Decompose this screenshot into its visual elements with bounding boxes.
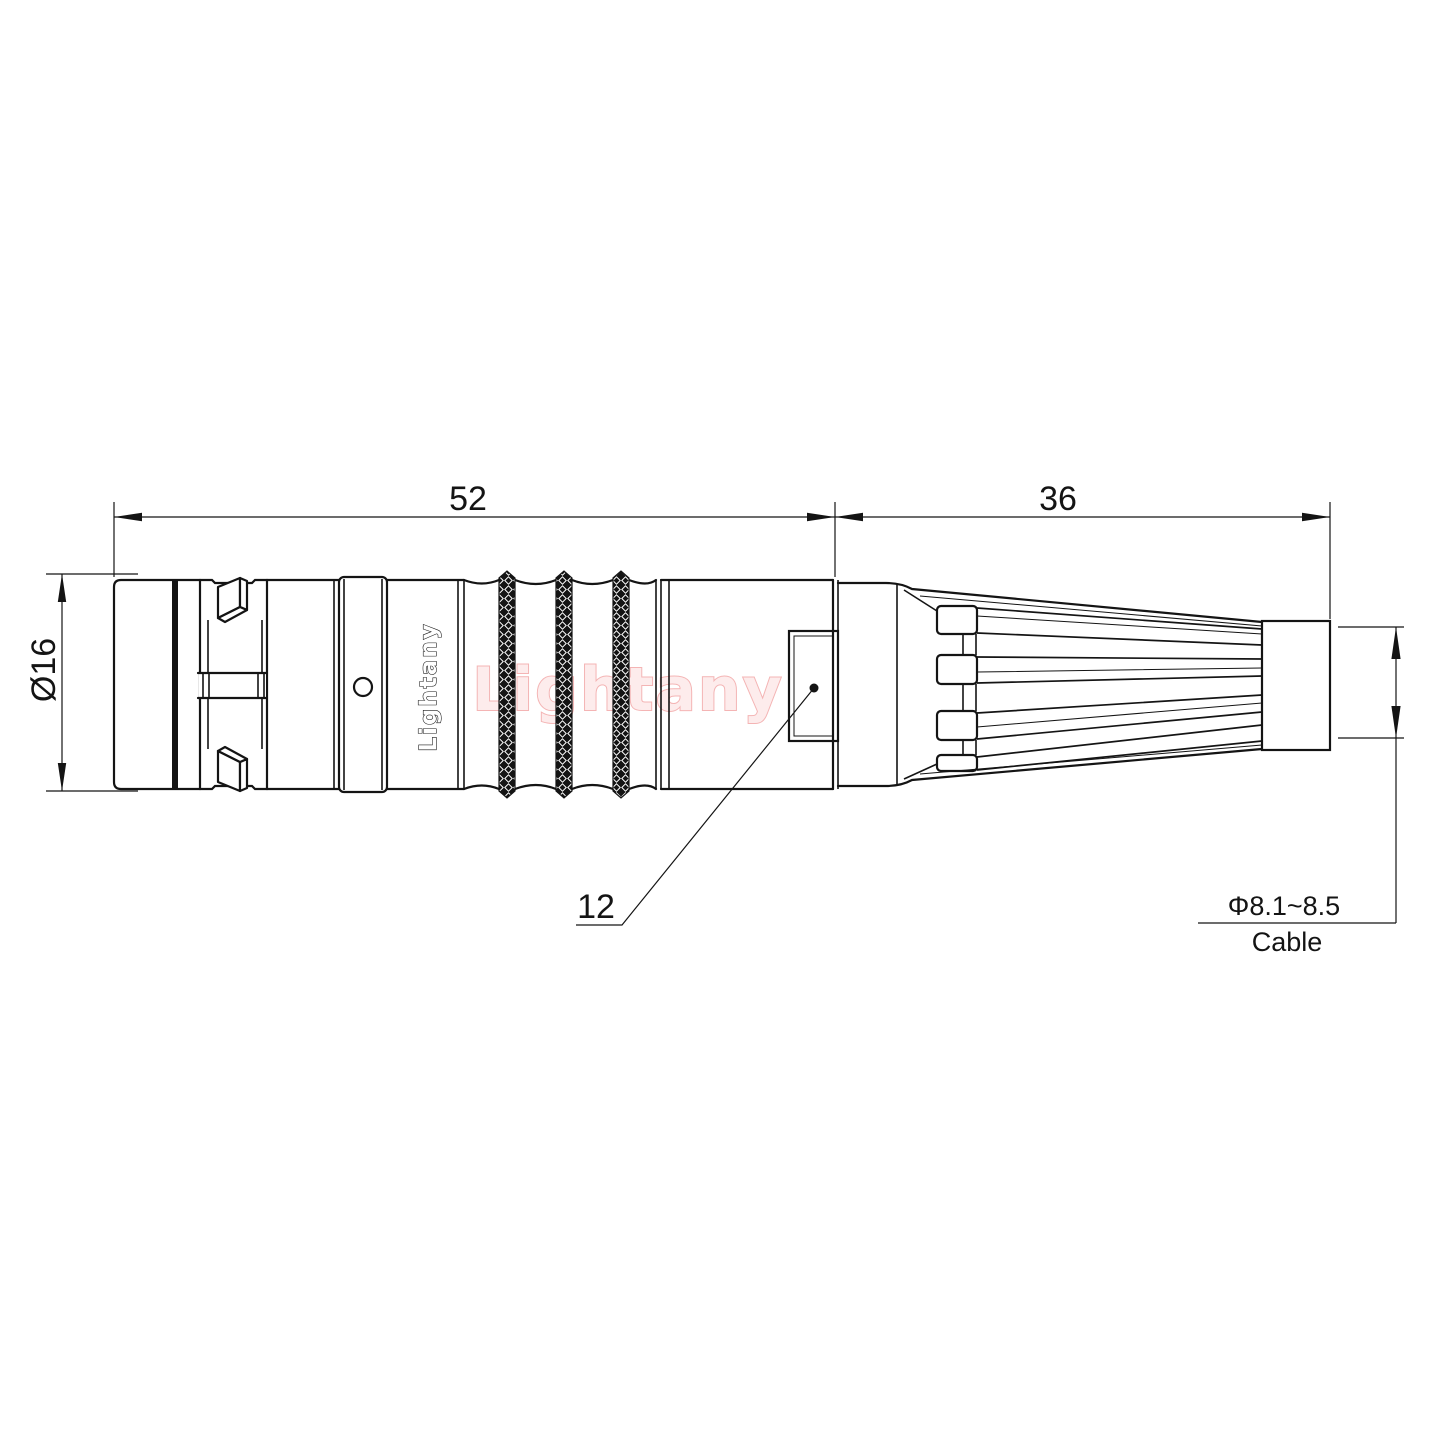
front-sleeve [114,580,200,789]
dim-label-dia16: Ø16 [25,638,63,702]
rib-tab [937,655,977,684]
dim-label-cable: Cable [1252,927,1323,957]
drawing-canvas: Lightany 52 36 Ø16 12 Φ8.1~8.5 [0,0,1440,1440]
boot-shoulder-slants [904,590,937,779]
mid-edges [267,580,339,789]
dim-label-cable-diameter: Φ8.1~8.5 [1228,891,1340,921]
front-groove-band [172,580,178,789]
collar-hole [354,678,372,696]
dim-label-52: 52 [449,480,487,518]
collar-outline [339,577,387,792]
arrowhead [835,513,863,521]
arrowhead [1391,706,1400,738]
latch-wedge-bottom [218,747,247,791]
knurl-band [556,571,572,798]
latch-section [198,578,267,791]
rib-tab [937,755,977,771]
arrowhead [807,513,835,521]
arrowhead [58,574,66,602]
rib-lines [977,608,1262,770]
latch-wedge-top [218,578,247,622]
boot-top-silhouette [838,583,1262,622]
collar-chamfers [344,579,382,790]
boot-bottom-silhouette [838,749,1262,786]
knurl-band [499,571,515,798]
connector-drawing-svg: Lightany 52 36 Ø16 12 Φ8.1~8.5 [0,0,1440,1440]
collar [339,577,387,792]
dimension-length-52: 52 [114,480,835,577]
dim-label-36: 36 [1039,480,1077,518]
barrel-end-lines [458,580,464,789]
arrowhead [58,763,66,791]
dimension-length-36: 36 [835,480,1330,619]
strain-relief-boot [838,583,1330,786]
mid-section [267,580,339,789]
arrowhead [1302,513,1330,521]
arrowhead [1391,627,1400,659]
rib-tab [937,606,977,634]
knurl-band [613,571,629,798]
brand-engraving: Lightany [416,622,442,751]
dim-label-12: 12 [577,888,615,926]
engraved-barrel: Lightany [387,580,464,789]
dimension-diameter-16: Ø16 [25,574,138,791]
front-sleeve-outline [114,580,200,789]
wedge-side [240,578,247,610]
cable-end-cap [1262,621,1330,750]
wedge-side [240,759,247,791]
rib-tab [937,711,977,740]
arrowhead [114,513,142,521]
